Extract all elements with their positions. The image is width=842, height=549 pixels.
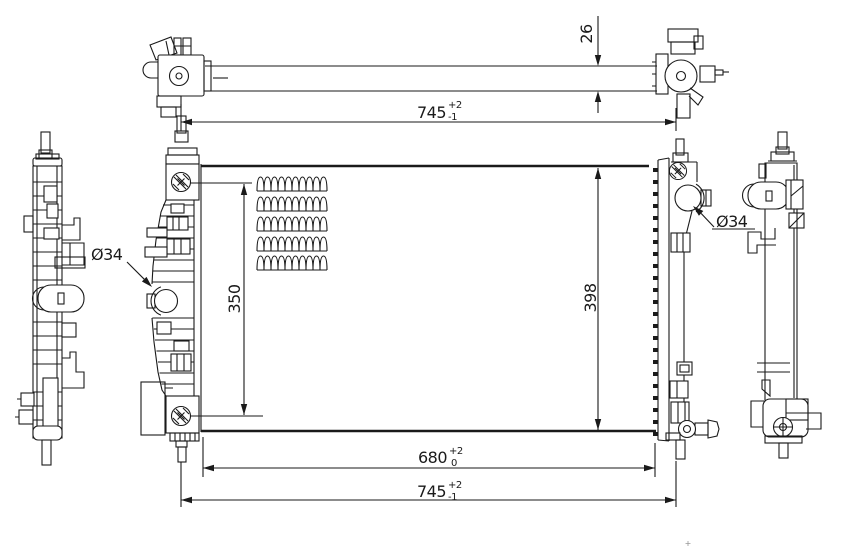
drain-valve — [679, 420, 720, 438]
dim-overall-width-tol-upper: +2 — [448, 480, 462, 491]
drawing-sheet: 26 745 +2 -1 — [0, 0, 842, 549]
label-dia34-left: Ø34 — [91, 245, 152, 287]
dim-inlet-span-value: 350 — [225, 284, 244, 313]
dim-top-width-tol-upper: +2 — [448, 100, 462, 111]
front-view-right-tank — [666, 139, 719, 459]
left-port — [147, 286, 181, 316]
registration-mark — [686, 541, 691, 546]
top-view-right-fitting — [652, 29, 729, 118]
dim-top-width: 745 +2 -1 — [181, 100, 676, 131]
front-view-left-tank — [141, 116, 199, 462]
dim-pin-span-value: 680 — [418, 448, 447, 467]
dim-overall-width-value: 745 — [417, 482, 446, 501]
front-view: 350 398 Ø34 Ø34 — [91, 116, 755, 462]
fin-pattern — [257, 177, 327, 270]
dim-pin-span-tol-lower: 0 — [451, 458, 457, 469]
dim-core-height: 398 — [581, 168, 601, 430]
label-dia34-right-text: Ø34 — [716, 212, 748, 231]
dim-pin-span: 680 +2 0 — [203, 437, 655, 477]
dim-pin-span-tol-upper: +2 — [449, 446, 463, 457]
left-side-view — [15, 132, 85, 465]
radiator-drawing: 26 745 +2 -1 — [0, 0, 842, 549]
dim-top-width-value: 745 — [417, 103, 446, 122]
dim-thickness-value: 26 — [577, 24, 596, 44]
right-port — [672, 182, 711, 214]
top-view-left-fitting — [143, 37, 211, 117]
dim-top-width-tol-lower: -1 — [448, 112, 457, 123]
right-side-view — [743, 132, 821, 458]
label-dia34-left-text: Ø34 — [91, 245, 123, 264]
label-dia34-right: Ø34 — [693, 206, 755, 231]
dim-core-height-value: 398 — [581, 283, 600, 312]
dim-thickness: 26 — [577, 16, 601, 113]
dim-overall-width-tol-lower: -1 — [448, 492, 457, 503]
